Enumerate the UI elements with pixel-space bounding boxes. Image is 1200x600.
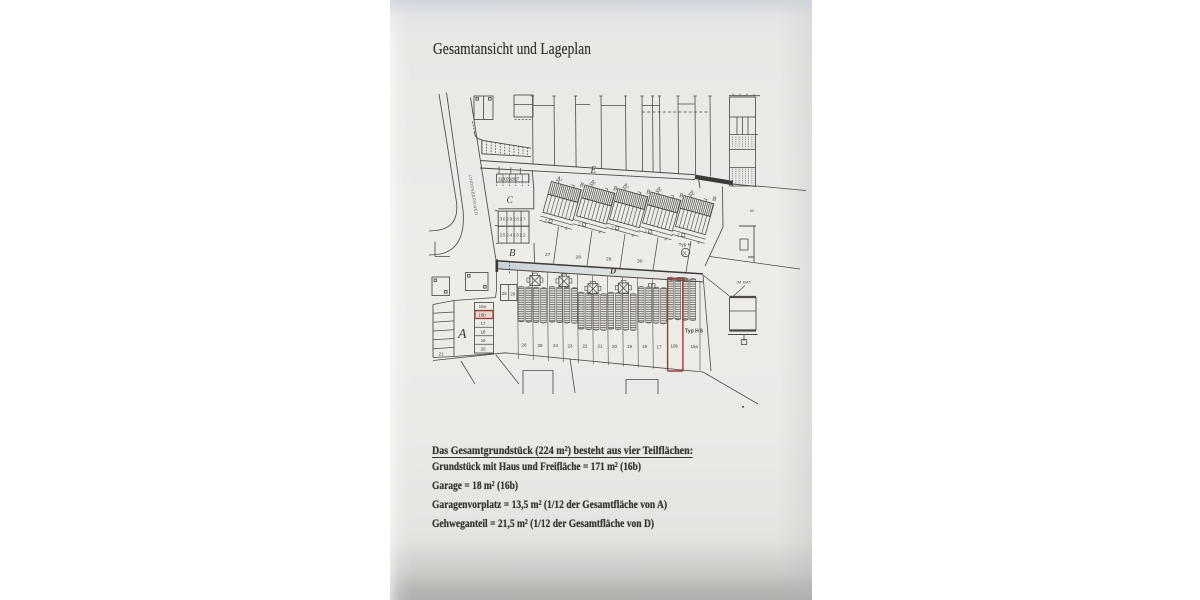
svg-text:A: A [457,327,467,342]
svg-text:2: 2 [611,227,614,232]
svg-text:A5: A5 [589,178,597,186]
svg-text:21: 21 [439,352,445,357]
svg-text:16b: 16b [671,344,679,349]
svg-text:4: 4 [665,237,667,242]
svg-text:16a: 16a [691,344,699,349]
svg-text:B: B [712,195,717,203]
svg-text:19: 19 [481,338,486,343]
svg-text:28: 28 [576,255,582,261]
svg-text:23: 23 [568,343,574,348]
svg-text:IM BAT: IM BAT [737,280,752,285]
svg-text:A2: A2 [655,185,663,193]
svg-text:2: 2 [545,220,548,225]
svg-text:27: 27 [545,252,551,258]
svg-text:B: B [509,248,516,259]
svg-text:2: 2 [677,234,680,239]
svg-text:21: 21 [598,344,604,349]
svg-text:4: 4 [698,240,700,245]
svg-text:31: 31 [682,251,687,256]
svg-text:A2: A2 [688,189,696,197]
svg-text:25: 25 [538,343,544,348]
svg-text:24: 24 [553,343,559,348]
svg-text:B: B [579,181,584,189]
svg-text:2: 2 [578,223,581,228]
svg-text:D: D [609,266,616,276]
svg-text:3130292827: 3130292827 [498,176,520,181]
svg-text:25: 25 [502,291,507,296]
svg-text:C: C [507,196,514,206]
svg-text:22: 22 [583,343,589,348]
svg-text:LINDENBERGWEG: LINDENBERGWEG [468,174,479,215]
svg-text:26: 26 [510,292,515,297]
svg-text:18: 18 [642,344,648,349]
svg-text:25242322: 25242322 [500,233,528,238]
svg-text:20: 20 [481,346,486,351]
svg-text:30: 30 [637,259,643,265]
svg-text:16b: 16b [478,312,486,317]
svg-text:2: 2 [644,230,647,235]
svg-text:29: 29 [606,257,612,263]
svg-text:4: 4 [599,230,601,235]
svg-text:17: 17 [657,344,663,349]
svg-text:26: 26 [522,343,528,348]
svg-text:16a: 16a [479,304,487,309]
svg-text:30292827: 30292827 [500,217,528,222]
svg-text:Typ H 6: Typ H 6 [685,329,703,335]
svg-text:Typ K: Typ K [679,242,692,248]
svg-text:60: 60 [750,209,754,213]
svg-text:E: E [590,165,597,175]
svg-text:20: 20 [612,344,618,349]
svg-text:18: 18 [481,329,486,334]
svg-text:A3: A3 [622,182,630,190]
svg-text:4: 4 [565,226,567,231]
svg-text:A3: A3 [555,175,563,183]
svg-text:19: 19 [627,344,633,349]
svg-text:17: 17 [481,321,486,326]
svg-text:4: 4 [632,233,634,238]
